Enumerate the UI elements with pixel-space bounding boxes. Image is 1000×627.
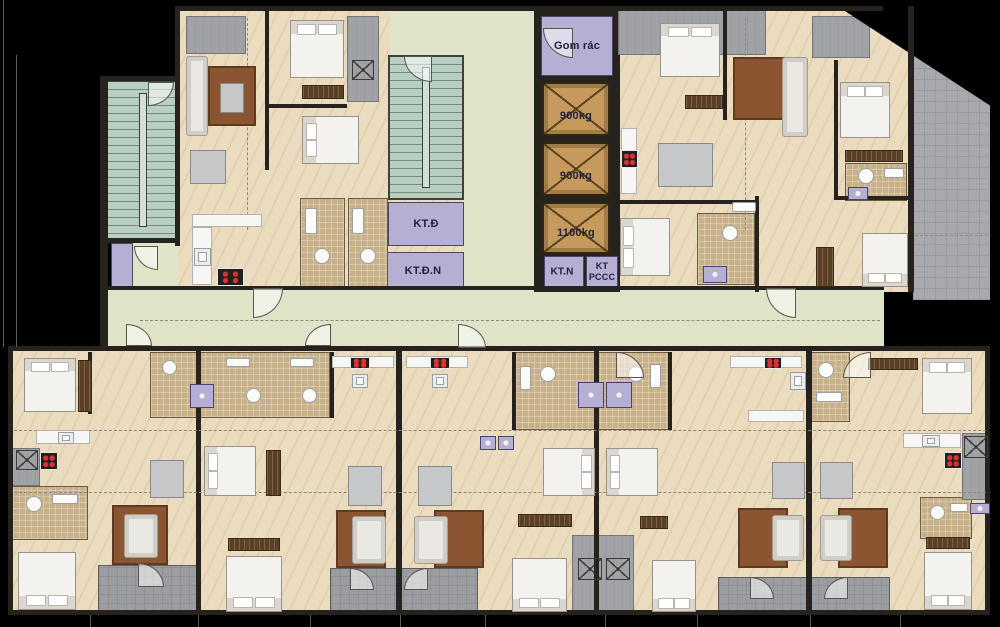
dash-lower-1 [14, 430, 986, 431]
stove-u2 [350, 357, 370, 369]
bed-u4-2 [652, 560, 696, 612]
label-kt-pccc-2: PCCC [589, 272, 615, 282]
basin-a1 [226, 358, 250, 367]
corridor-stair-landing [390, 8, 462, 55]
kitchen-counter-u4-2 [748, 410, 804, 422]
basin-upper-3 [732, 202, 756, 212]
dining-table-u5 [820, 462, 853, 499]
dim-line-left-2 [16, 55, 17, 347]
bed-pillow [623, 248, 633, 268]
basin-upper-1 [305, 208, 317, 234]
bed-right-unit-4 [862, 233, 908, 287]
floor-plan-canvas: Gom rác900kg900kg1100kgKT.ĐKT.Đ.NKT.NKTP… [0, 0, 1000, 627]
planter-left-loggia [352, 60, 374, 80]
toilet-a2 [246, 388, 261, 403]
bed-pillow [947, 362, 965, 373]
toilet-upper-4 [858, 168, 874, 184]
bed-u3-1 [543, 448, 595, 496]
planter-foyer-1 [578, 558, 602, 580]
washer-right-unit-2 [848, 187, 868, 200]
party-wall-4 [806, 350, 812, 614]
bed-pillow [297, 24, 316, 36]
washer-b2 [606, 382, 632, 408]
kitchen-counter-left-h [192, 214, 262, 227]
wall-right-unit-int-1 [723, 8, 727, 120]
shaft-u1 [16, 450, 38, 470]
stairwell-left [105, 80, 180, 240]
wall-left-unit-int-1 [265, 8, 269, 170]
bed-u4-1 [606, 448, 658, 496]
tick-1 [90, 615, 91, 627]
basin-d1 [950, 503, 968, 512]
elevator-900kg-2 [542, 142, 610, 196]
tick-3 [310, 615, 311, 627]
bed-pillow [255, 597, 275, 608]
bed-pillow [868, 273, 885, 284]
stove-right-unit [621, 150, 638, 168]
entry-left-unit [186, 16, 246, 54]
bed-u5-2 [924, 552, 972, 610]
dining-table-left-unit [190, 150, 226, 184]
washer-corridor-1 [480, 436, 496, 450]
bed-pillow [26, 595, 46, 607]
tech-closet-left [111, 243, 133, 290]
bed-pillow [306, 140, 317, 157]
stove-u5 [944, 452, 962, 469]
sofa-right-unit [782, 57, 808, 137]
basin-b2 [650, 364, 661, 388]
toilet-a1 [162, 360, 177, 375]
bed-pillow [208, 453, 219, 471]
tick-7 [697, 615, 698, 627]
shaft-u5 [964, 436, 988, 458]
dining-table-u1 [150, 460, 184, 498]
dining-table-right-unit [658, 143, 713, 187]
wall-upper-right-east [908, 6, 914, 292]
toilet-d1 [930, 505, 945, 520]
bed-pillow [865, 86, 883, 97]
label-kt-pccc-1: KT [596, 261, 608, 271]
bed-pillow [885, 273, 902, 284]
bed-pillow [623, 226, 633, 246]
wall-upper-left [100, 76, 108, 346]
wardrobe-right-unit-1 [685, 95, 723, 109]
wall-lower-int-4 [668, 352, 672, 430]
toilet-a3 [302, 388, 317, 403]
loggia-top-right [812, 16, 870, 58]
bed-pillow [48, 595, 68, 607]
bed-pillow [31, 362, 50, 373]
bed-pillow [931, 595, 948, 607]
wall-lower-int-3 [512, 352, 516, 430]
washer-right-unit-1 [703, 266, 727, 283]
sink-u1 [58, 432, 74, 444]
washer-d1 [970, 503, 990, 514]
bed-right-unit-3 [620, 218, 670, 276]
bed-pillow [51, 362, 70, 373]
bed-pillow [691, 27, 712, 38]
dining-table-u4 [772, 462, 805, 499]
label-lift-900-1: 900kg [560, 110, 592, 122]
bed-left-unit-1 [290, 20, 344, 78]
basin-a2 [290, 358, 314, 367]
toilet-upper-3 [722, 225, 738, 241]
planter-foyer-2 [606, 558, 630, 580]
toilet-u1 [26, 496, 42, 512]
toilet-upper-2 [360, 248, 376, 264]
wall-stairs-left-top [103, 76, 180, 81]
label-kt-n: KT.N [550, 267, 573, 278]
stove-u4 [764, 357, 782, 369]
wardrobe-u5-1 [868, 358, 918, 370]
basin-upper-2 [352, 208, 364, 234]
tick-9 [900, 615, 901, 627]
bed-pillow [674, 598, 690, 609]
sofa-left-unit [186, 56, 208, 136]
tick-8 [810, 615, 811, 627]
sofa-u4 [772, 515, 804, 561]
dim-line-left-1 [3, 0, 4, 347]
label-gom-rac: Gom rác [554, 40, 600, 52]
wardrobe-u4 [640, 516, 668, 529]
bed-pillow [610, 455, 621, 472]
party-wall-2 [396, 350, 402, 614]
wall-lower-east [985, 350, 990, 614]
bed-pillow [847, 86, 865, 97]
sink-u4 [790, 372, 806, 390]
balcony-3 [718, 577, 890, 614]
basin-c1 [816, 392, 842, 402]
toilet-b1 [540, 366, 556, 382]
bed-u2-2 [226, 556, 282, 612]
bed-u5-1 [922, 358, 972, 414]
sink-left-unit [194, 248, 211, 266]
sink-u2 [352, 374, 368, 388]
toilet-upper-1 [314, 248, 330, 264]
dash-corridor [140, 320, 880, 321]
label-lift-900-2: 900kg [560, 170, 592, 182]
wardrobe-u2-2 [228, 538, 280, 551]
label-kt-d-n: KT.Đ.N [405, 265, 442, 277]
toilet-c1 [818, 362, 834, 378]
washer-corridor-2 [498, 436, 514, 450]
dash-terrace [915, 235, 988, 236]
tick-4 [400, 615, 401, 627]
bed-right-unit-1 [660, 23, 720, 77]
sofa-u5 [820, 515, 852, 561]
bed-pillow [233, 597, 253, 608]
wardrobe-left-unit [302, 85, 344, 99]
bed-pillow [668, 27, 689, 38]
coffee-table-left-unit [220, 83, 244, 113]
stove-left-unit [217, 268, 244, 286]
wall-lower-south [8, 610, 990, 615]
bed-pillow [929, 362, 947, 373]
bed-pillow [519, 598, 538, 609]
label-lift-1100: 1100kg [557, 227, 595, 239]
washer-a [190, 384, 214, 408]
elevator-900kg-1 [542, 82, 610, 136]
wardrobe-u2-1 [266, 450, 281, 496]
bed-pillow [658, 598, 674, 609]
bed-right-unit-2 [840, 82, 890, 138]
wall-left-unit-int-2 [265, 104, 347, 108]
bed-pillow [581, 455, 592, 472]
tick-6 [605, 615, 606, 627]
tick-5 [485, 615, 486, 627]
bed-u1-1 [24, 358, 76, 412]
loggia-left-unit [347, 16, 379, 102]
basin-upper-4 [884, 168, 904, 178]
basin-b1 [520, 366, 531, 390]
stove-u3 [430, 357, 450, 369]
sofa-u1 [124, 514, 158, 558]
bed-u1-2 [18, 552, 76, 610]
bed-u3-2 [512, 558, 567, 612]
wall-left-unit-west [175, 6, 180, 246]
dining-table-u3 [418, 466, 452, 506]
wardrobe-u5-2 [926, 537, 970, 549]
site-mask-left [0, 0, 100, 347]
sofa-u2 [352, 516, 386, 564]
sink-u5 [922, 435, 940, 447]
bed-pillow [610, 472, 621, 489]
stove-u1 [40, 452, 58, 470]
dash-right-unit [745, 18, 746, 230]
bed-pillow [208, 471, 219, 489]
bed-pillow [948, 595, 965, 607]
wall-lower-west [8, 350, 13, 614]
wall-right-unit-int-5 [834, 196, 910, 200]
wall-corridor-south [8, 346, 990, 351]
dining-table-u2 [348, 466, 382, 506]
sink-u3 [432, 374, 448, 388]
bed-u2-1 [204, 446, 256, 496]
bed-left-unit-2 [302, 116, 359, 164]
bed-pillow [581, 472, 592, 489]
bed-pillow [540, 598, 559, 609]
label-kt-d: KT.Đ [413, 218, 438, 230]
wall-right-unit-int-4 [834, 60, 838, 200]
rug-right-unit [733, 57, 786, 120]
bed-pillow [306, 123, 317, 140]
wardrobe-u3 [518, 514, 572, 527]
wardrobe-right-unit-2 [845, 150, 903, 162]
bed-pillow [318, 24, 337, 36]
wardrobe-right-unit-3 [816, 247, 834, 287]
wall-stairs-left-bottom [105, 238, 180, 243]
sofa-u3 [414, 516, 448, 564]
washer-b1 [578, 382, 604, 408]
tick-2 [198, 615, 199, 627]
wall-upper-top [178, 6, 883, 11]
wardrobe-u1 [78, 360, 92, 412]
basin-u1 [52, 494, 78, 504]
